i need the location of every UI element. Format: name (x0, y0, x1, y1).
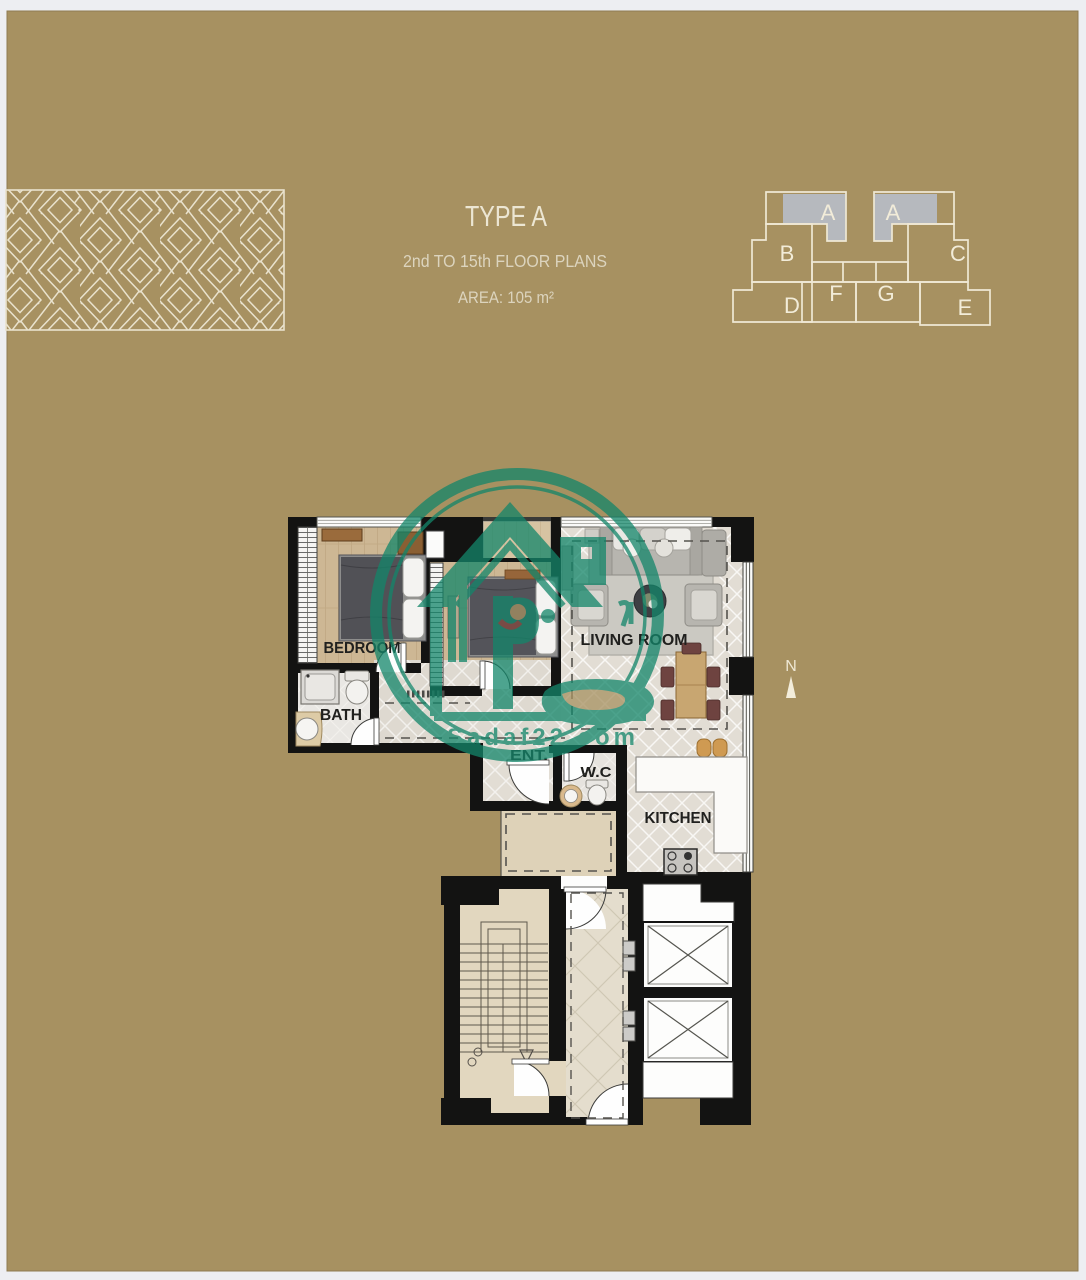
svg-text:E: E (958, 295, 973, 320)
svg-text:KITCHEN: KITCHEN (645, 810, 712, 827)
svg-text:W.C: W.C (581, 764, 612, 781)
svg-text:AREA: 105 m²: AREA: 105 m² (458, 289, 554, 307)
svg-text:2nd TO 15th FLOOR PLANS: 2nd TO 15th FLOOR PLANS (403, 251, 607, 271)
svg-text:G: G (877, 281, 894, 306)
svg-text:BEDROOM: BEDROOM (324, 640, 401, 657)
svg-text:TYPE A: TYPE A (465, 201, 548, 233)
svg-text:Sadaf22.com: Sadaf22.com (447, 724, 639, 751)
svg-text:F: F (829, 281, 842, 306)
svg-text:B: B (780, 241, 795, 266)
svg-text:A: A (821, 200, 836, 225)
svg-text:LIVING ROOM: LIVING ROOM (581, 632, 688, 649)
svg-text:D: D (784, 293, 800, 318)
svg-text:A: A (886, 200, 901, 225)
svg-text:C: C (950, 241, 966, 266)
svg-text:N: N (785, 658, 797, 675)
svg-text:BATH: BATH (320, 707, 362, 724)
